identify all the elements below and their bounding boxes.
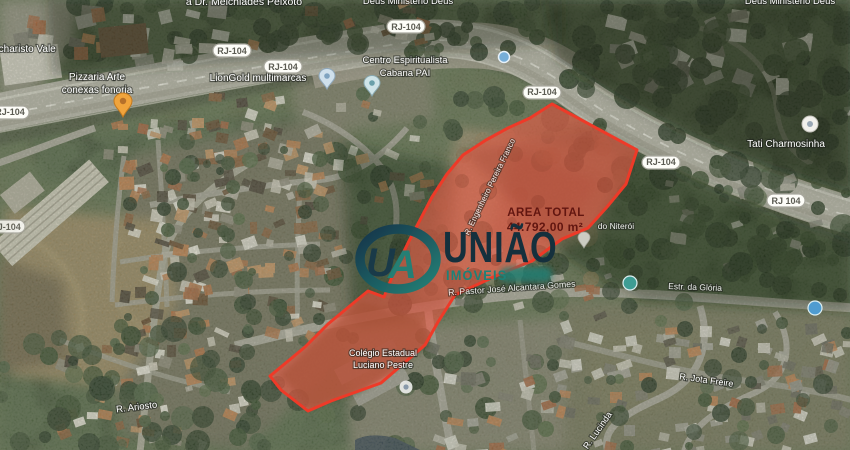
svg-text:RJ-104: RJ-104 [527,87,557,97]
svg-text:Cabana PAI: Cabana PAI [380,68,431,79]
svg-text:Echaristo Vale: Echaristo Vale [0,44,56,55]
svg-text:Tati Charmosinha: Tati Charmosinha [747,139,825,150]
svg-text:do Niterói: do Niterói [598,221,634,231]
svg-text:RJ-104: RJ-104 [0,107,25,117]
svg-text:RJ-104: RJ-104 [217,46,247,56]
svg-text:Centro Espiritualista: Centro Espiritualista [362,55,448,66]
svg-text:Deus Ministério Deus: Deus Ministério Deus [363,0,454,7]
svg-text:AREA TOTAL: AREA TOTAL [507,207,585,219]
svg-text:Estr. da Glória: Estr. da Glória [668,281,722,293]
svg-text:Colégio Estadual: Colégio Estadual [349,348,417,358]
svg-text:RJ-104: RJ-104 [646,157,676,167]
svg-text:RJ-104: RJ-104 [0,222,21,232]
svg-text:RJ 104: RJ 104 [771,196,800,206]
svg-text:a Dr. Melchiades Peixoto: a Dr. Melchiades Peixoto [186,0,302,8]
svg-text:A: A [387,243,417,287]
svg-text:UNIÃO: UNIÃO [443,223,557,272]
svg-text:Pizzaria Arte: Pizzaria Arte [69,72,126,83]
svg-text:RJ-104: RJ-104 [391,22,421,32]
svg-text:IMÓVEIS: IMÓVEIS [446,268,507,283]
svg-text:Luciano Pestre: Luciano Pestre [353,360,413,370]
svg-text:RJ-104: RJ-104 [268,62,298,72]
svg-text:Deus Ministério Deus: Deus Ministério Deus [745,0,836,7]
svg-text:LionGold multimarcas: LionGold multimarcas [210,73,307,84]
